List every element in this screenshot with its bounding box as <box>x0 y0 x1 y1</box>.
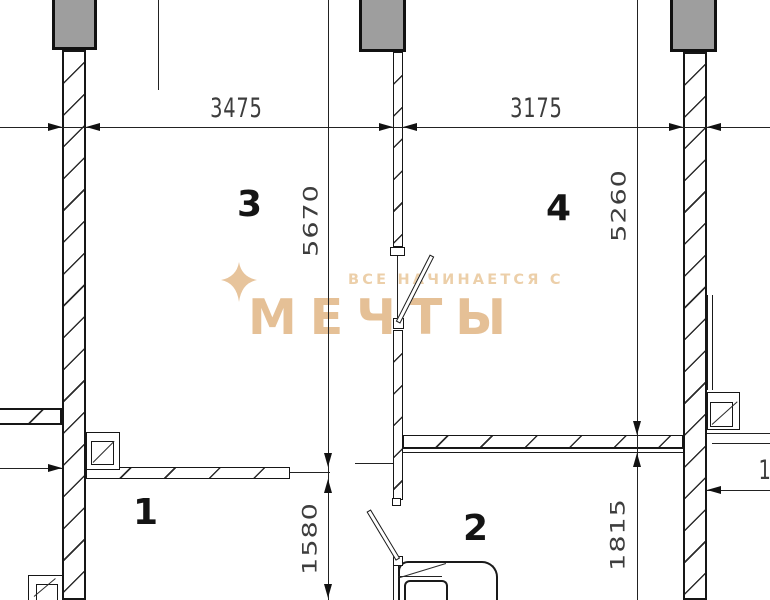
dimension-arrow <box>707 486 721 494</box>
dimension-label-partial: 1 <box>759 455 770 486</box>
watermark-title: МЕЧТЫ <box>248 289 519 346</box>
center-wall-lower <box>393 330 403 500</box>
dimension-arrow <box>48 464 62 472</box>
extension-line <box>158 0 159 90</box>
dimension-label: 1580 <box>299 502 321 575</box>
right-side-line <box>707 433 770 434</box>
room-number: 2 <box>463 508 488 549</box>
dimension-arrow <box>669 123 683 131</box>
dimension-label: 1815 <box>607 498 629 571</box>
dimension-arrow <box>633 453 641 467</box>
center-wall-upper <box>393 52 403 247</box>
vertical-dimension-line-left <box>328 0 329 600</box>
dimension-arrow <box>324 584 332 598</box>
wall-end-cap <box>390 247 405 256</box>
wall-foot <box>392 498 401 506</box>
dimension-label: 5670 <box>300 184 322 257</box>
column <box>670 0 717 52</box>
door-leaf <box>366 509 400 560</box>
room-number: 1 <box>133 492 158 533</box>
dimension-arrow <box>48 123 62 131</box>
dimension-arrow <box>707 123 721 131</box>
wall-below-door <box>393 566 399 600</box>
dimension-label: 3475 <box>210 93 262 124</box>
wall-connector-line <box>290 472 330 473</box>
right-pilaster <box>707 295 713 390</box>
toilet-tank <box>404 580 448 600</box>
left-stub-wall <box>0 408 62 425</box>
right-wall <box>683 52 707 600</box>
room-number: 3 <box>237 184 262 225</box>
column <box>359 0 406 52</box>
door-opening-line <box>397 256 398 320</box>
dimension-arrow <box>86 123 100 131</box>
room-number: 4 <box>546 188 571 229</box>
right-side-line <box>712 443 770 444</box>
wall-connector-line <box>355 463 393 464</box>
column <box>52 0 97 50</box>
dimension-arrow <box>403 123 417 131</box>
dimension-label: 3175 <box>510 93 562 124</box>
left-wall <box>62 50 86 600</box>
dimension-arrow <box>324 453 332 467</box>
dimension-arrow <box>633 421 641 435</box>
wall-room4-room2 <box>403 435 683 448</box>
dimension-arrow <box>324 479 332 493</box>
dimension-label: 5260 <box>608 169 630 242</box>
vertical-dimension-line-right <box>637 0 638 600</box>
wall-room4-room2-liner <box>403 448 683 453</box>
floor-plan: ВСЕ НАЧИНАЕТСЯ С МЕЧТЫ <box>0 0 770 600</box>
dimension-arrow <box>379 123 393 131</box>
watermark-subtitle: ВСЕ НАЧИНАЕТСЯ С <box>348 272 563 288</box>
